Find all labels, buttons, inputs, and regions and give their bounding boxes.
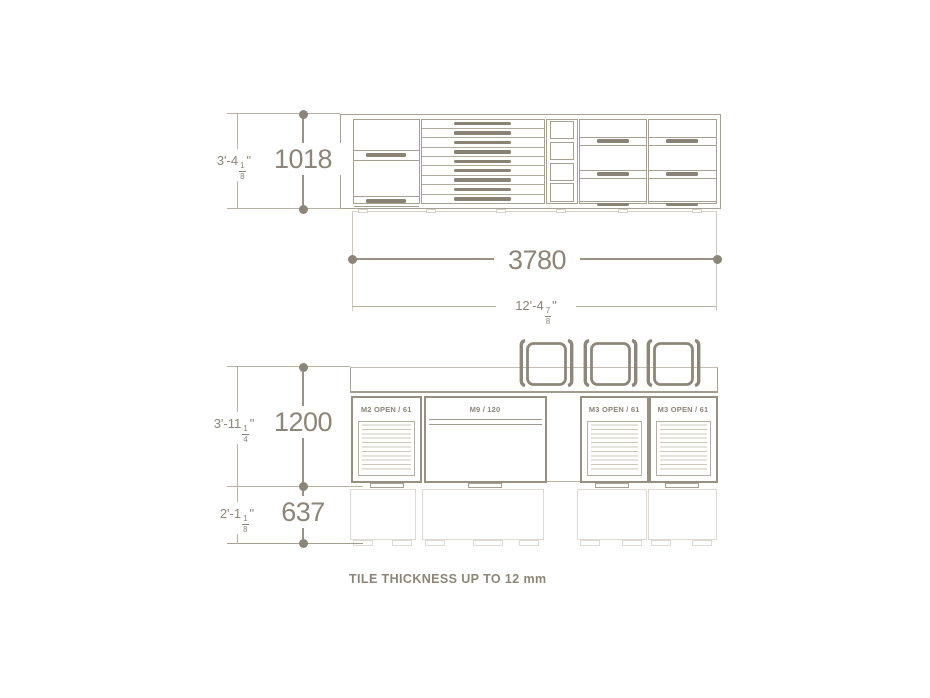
extension-line — [227, 486, 363, 487]
ghost-base-module — [648, 489, 717, 541]
plan-width-metric: 3780 — [494, 244, 580, 276]
chair-top-view — [644, 337, 703, 389]
ghost-base-module — [577, 489, 647, 541]
ghost-foot — [651, 540, 671, 546]
elevation-unit-m2: M2 OPEN / 61 — [351, 396, 422, 483]
ghost-foot — [392, 540, 412, 546]
extension-line — [227, 208, 340, 209]
drawer-strip — [580, 137, 647, 146]
drawer-handle — [454, 178, 511, 182]
drawer-handle — [454, 197, 511, 201]
drawer-handle — [454, 141, 511, 145]
drawer-strip — [649, 137, 716, 146]
ghost-foot — [519, 540, 539, 546]
flat-drawer — [422, 195, 544, 203]
plan-foot-tick — [692, 209, 702, 213]
plan-module-flat-drawers — [421, 119, 545, 205]
drawer-handle — [666, 172, 698, 176]
open-bay-base-line — [547, 481, 581, 482]
tile-thickness-note: TILE THICKNESS UP TO 12 mm — [349, 572, 546, 586]
unit-foot — [370, 483, 404, 488]
flat-drawer — [422, 176, 544, 185]
ghost-foot — [622, 540, 642, 546]
plan-width-imperial: 12'-478" — [496, 294, 576, 326]
drawer-strip — [580, 170, 647, 179]
drawer-strip — [649, 170, 716, 179]
extension-line — [227, 543, 363, 544]
elevation-unit-m9: M9 / 120 — [424, 396, 547, 483]
cubby — [550, 163, 575, 181]
drawer-handle — [454, 160, 511, 164]
unit-label: M2 OPEN / 61 — [353, 405, 420, 414]
flat-drawer — [422, 120, 544, 129]
drawer-handle — [366, 153, 406, 157]
base-height-imperial: 2'-118" — [202, 502, 272, 534]
unit-foot — [665, 483, 699, 488]
chair-left-rail — [648, 341, 652, 386]
unit-label: M3 OPEN / 61 — [582, 405, 647, 414]
chair-top-view — [581, 337, 640, 389]
dimension-dot — [299, 363, 308, 372]
shelf-line — [429, 419, 542, 425]
drawer-handle — [366, 199, 406, 203]
chair-right-rail — [568, 341, 572, 386]
flat-drawer — [422, 166, 544, 175]
elevation-unit-m3-right: M3 OPEN / 61 — [649, 396, 718, 483]
flat-drawer — [422, 148, 544, 157]
plan-module-doors — [353, 119, 420, 205]
dimension-dot — [299, 539, 308, 548]
flat-drawer — [422, 129, 544, 138]
plan-foot-tick — [358, 209, 368, 213]
plan-height-metric: 1018 — [263, 143, 343, 175]
plan-module-cubbies — [546, 119, 578, 205]
drawer-strip — [649, 201, 716, 208]
drawer-handle — [454, 150, 511, 154]
flat-drawer — [422, 185, 544, 194]
counter-height-metric: 1200 — [262, 406, 344, 438]
unit-foot — [468, 483, 502, 488]
elevation-unit-m3-left: M3 OPEN / 61 — [580, 396, 649, 483]
extension-line — [227, 113, 340, 114]
slat-texture — [656, 421, 711, 476]
ghost-base-module — [350, 489, 416, 541]
drawer-handle — [597, 203, 629, 206]
drawer-strip — [354, 196, 419, 207]
plan-foot-tick — [556, 209, 566, 213]
unit-label: M3 OPEN / 61 — [651, 405, 716, 414]
unit-foot — [595, 483, 629, 488]
ghost-base-module — [422, 489, 544, 541]
drawer-strip — [580, 201, 647, 208]
drawer-handle — [454, 169, 511, 173]
dimension-dot — [348, 255, 357, 264]
counter-height-imperial: 3'-1114" — [196, 412, 272, 444]
drawer-handle — [666, 139, 698, 143]
chair-right-rail — [632, 341, 636, 386]
plan-module-drawers-right — [648, 119, 717, 205]
technical-drawing-canvas: 3'-418" 1018 3780 12'-478" M2 OPEN / — [0, 0, 930, 698]
chair-top-view — [517, 337, 576, 389]
dimension-dot — [299, 482, 308, 491]
plan-base-line — [352, 211, 717, 212]
drawer-handle — [454, 131, 511, 135]
cubby — [550, 142, 575, 160]
dimension-dot — [299, 205, 308, 214]
chair-right-rail — [695, 341, 699, 386]
plan-height-imperial: 3'-418" — [198, 149, 270, 181]
chair-left-rail — [521, 341, 525, 386]
ghost-foot — [473, 540, 503, 546]
extension-line — [227, 366, 350, 367]
drawer-handle — [454, 188, 511, 192]
plan-foot-tick — [426, 209, 436, 213]
drawer-handle — [597, 172, 629, 176]
dimension-dot — [299, 110, 308, 119]
door-panel — [354, 120, 419, 150]
flat-drawer — [422, 138, 544, 147]
slat-texture — [358, 421, 415, 476]
chair-seat-outline — [591, 344, 629, 385]
chair-seat-outline — [528, 344, 566, 385]
dimension-dot — [713, 255, 722, 264]
chair-left-rail — [585, 341, 589, 386]
plan-module-drawers-left — [579, 119, 648, 205]
chair-seat-outline — [655, 344, 693, 385]
drawer-handle — [454, 122, 511, 126]
flat-drawer — [422, 157, 544, 166]
slat-texture — [587, 421, 642, 476]
cubby — [550, 183, 575, 201]
plan-foot-tick — [618, 209, 628, 213]
drawer-strip — [354, 150, 419, 161]
ghost-foot — [580, 540, 600, 546]
base-height-metric: 637 — [266, 496, 340, 528]
ghost-foot — [425, 540, 445, 546]
door-panel — [354, 161, 419, 196]
drawer-handle — [597, 139, 629, 143]
ghost-foot — [692, 540, 712, 546]
drawer-handle — [666, 203, 698, 206]
unit-label: M9 / 120 — [426, 405, 545, 414]
plan-foot-tick — [496, 209, 506, 213]
cubby — [550, 121, 575, 139]
